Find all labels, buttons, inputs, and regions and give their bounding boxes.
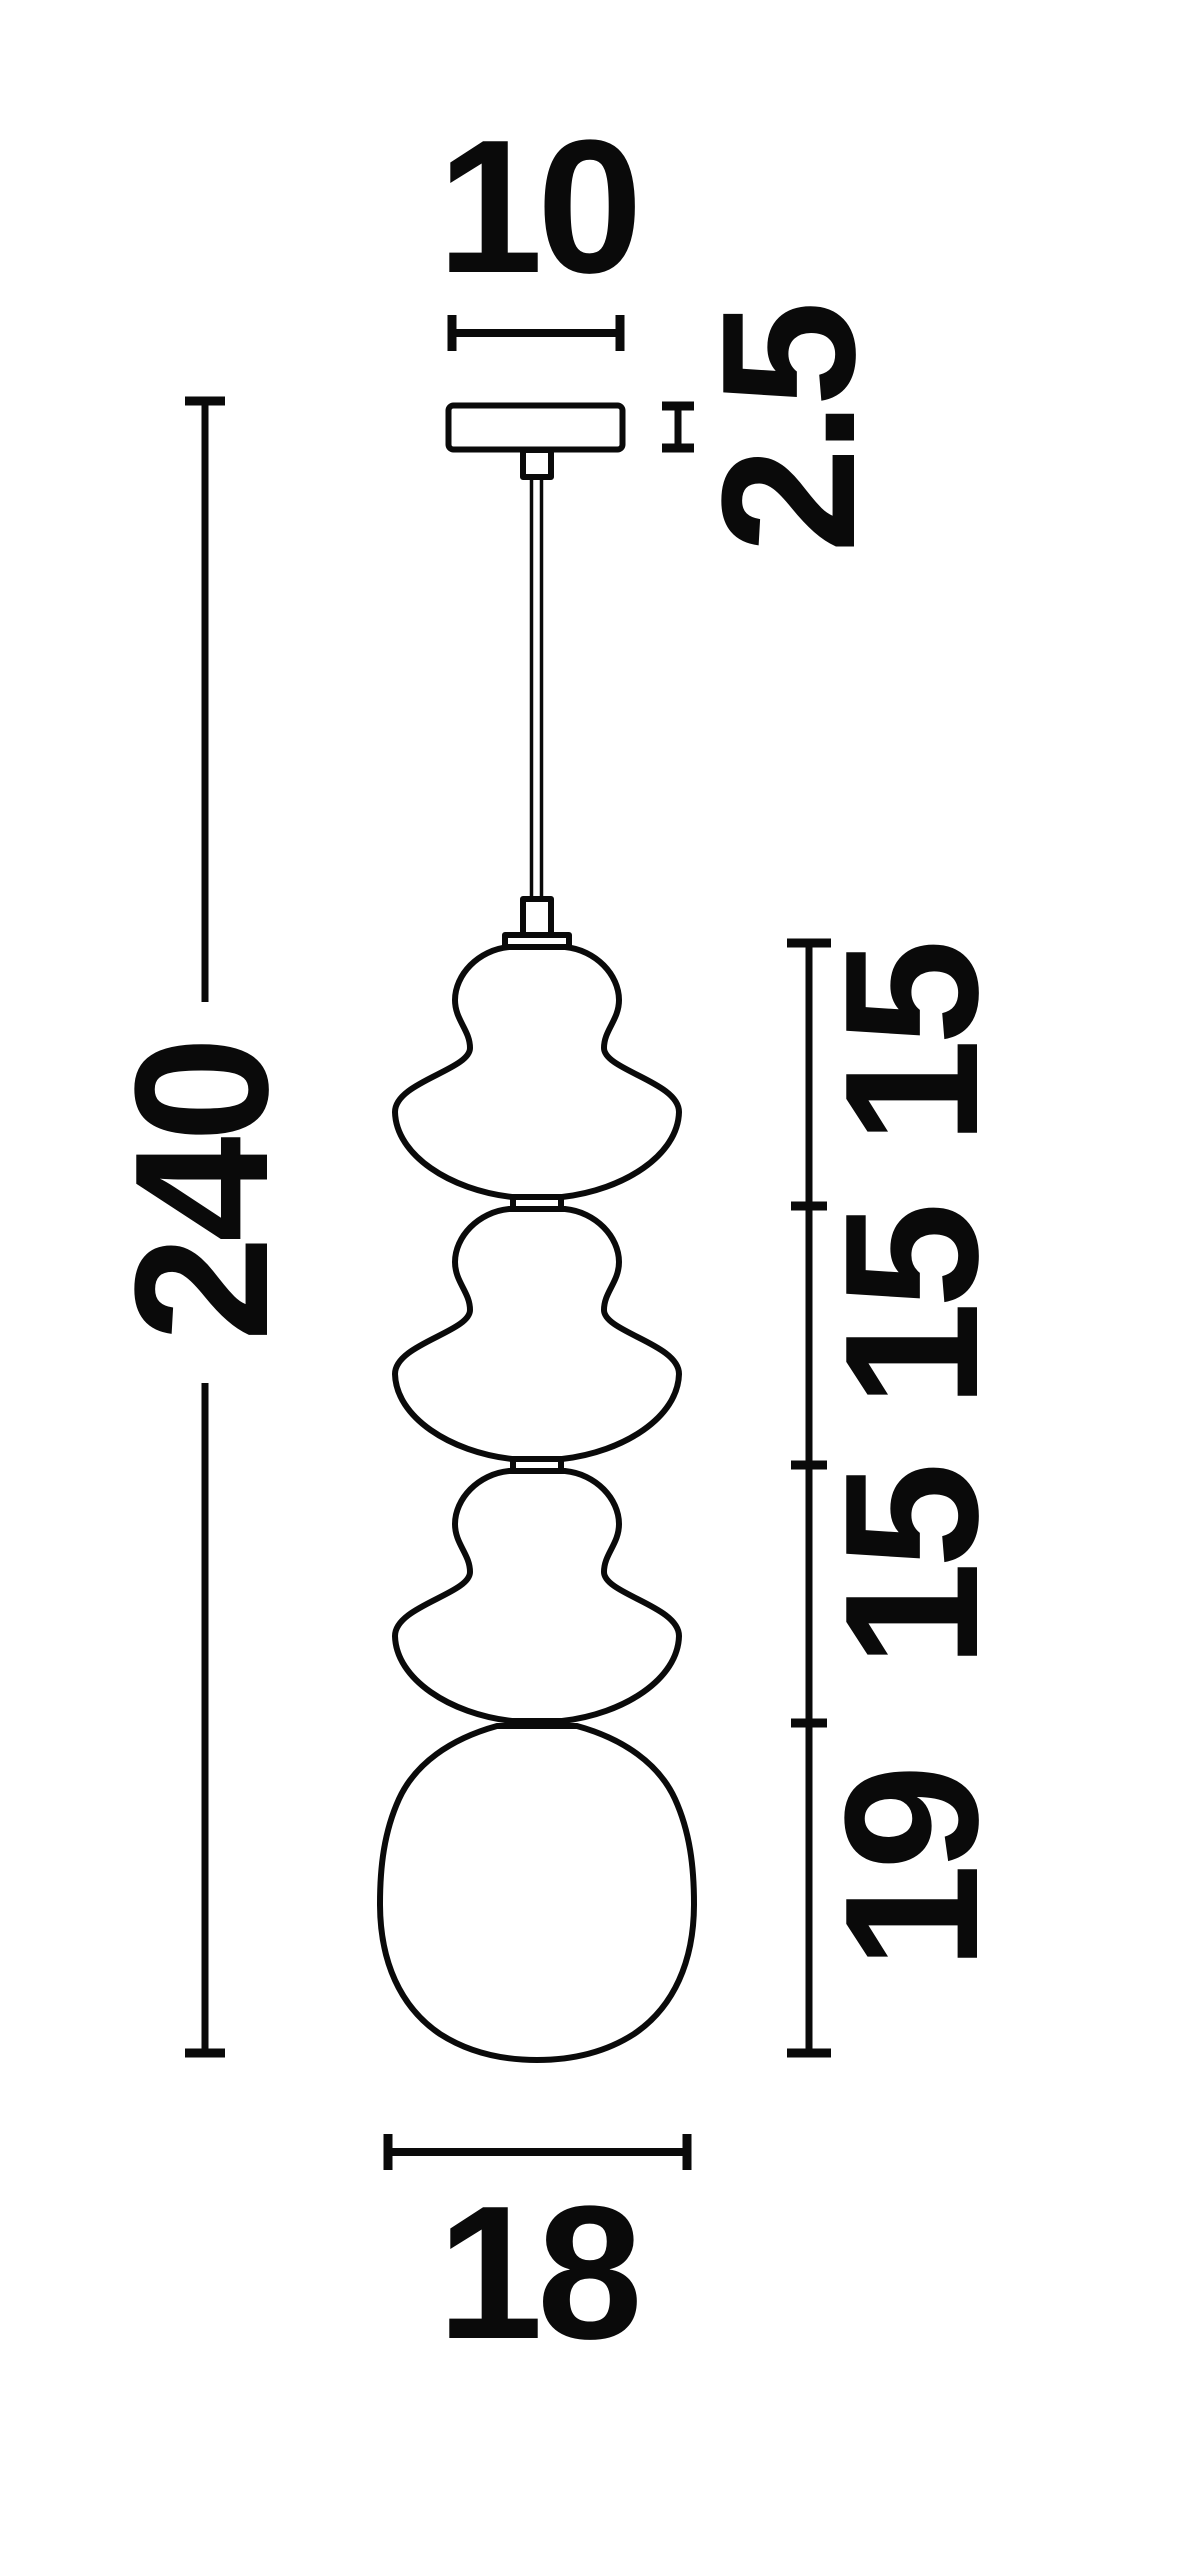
overall-drop-dimension: 240 <box>96 401 308 2053</box>
globe-width-label: 18 <box>437 2167 637 2379</box>
cable-hanger-nub <box>523 450 551 477</box>
shade-connector-2 <box>513 1459 561 1471</box>
dimension-drawing-canvas: 10 2.5 240 15 15 15 19 <box>0 0 1192 2560</box>
lamp-body <box>380 406 694 2061</box>
canopy-width-label: 10 <box>437 101 636 313</box>
overall-drop-label: 240 <box>96 1042 308 1341</box>
shade-connector-1 <box>513 1197 561 1209</box>
canopy-thickness-dimension: 2.5 <box>662 306 895 553</box>
bottom-globe-height-label: 19 <box>806 1770 1018 1969</box>
glass-shade-3 <box>395 1471 679 1721</box>
bottom-globe <box>380 1726 694 2060</box>
canopy-width-dimension: 10 <box>437 101 636 351</box>
shade-tier-3-label: 15 <box>806 1467 1018 1668</box>
shade-tier-2-label: 15 <box>806 1207 1018 1408</box>
pendant-lamp-diagram: 10 2.5 240 15 15 15 19 <box>0 0 1192 2560</box>
section-heights-dimension: 15 15 15 19 <box>787 943 1018 2053</box>
lamp-socket <box>523 899 551 935</box>
globe-width-dimension: 18 <box>388 2134 687 2379</box>
shade-tier-1-label: 15 <box>806 944 1018 1145</box>
glass-shade-1 <box>395 947 679 1197</box>
glass-shade-2 <box>395 1209 679 1459</box>
canopy-thickness-label: 2.5 <box>683 306 895 553</box>
ceiling-canopy <box>449 406 623 450</box>
